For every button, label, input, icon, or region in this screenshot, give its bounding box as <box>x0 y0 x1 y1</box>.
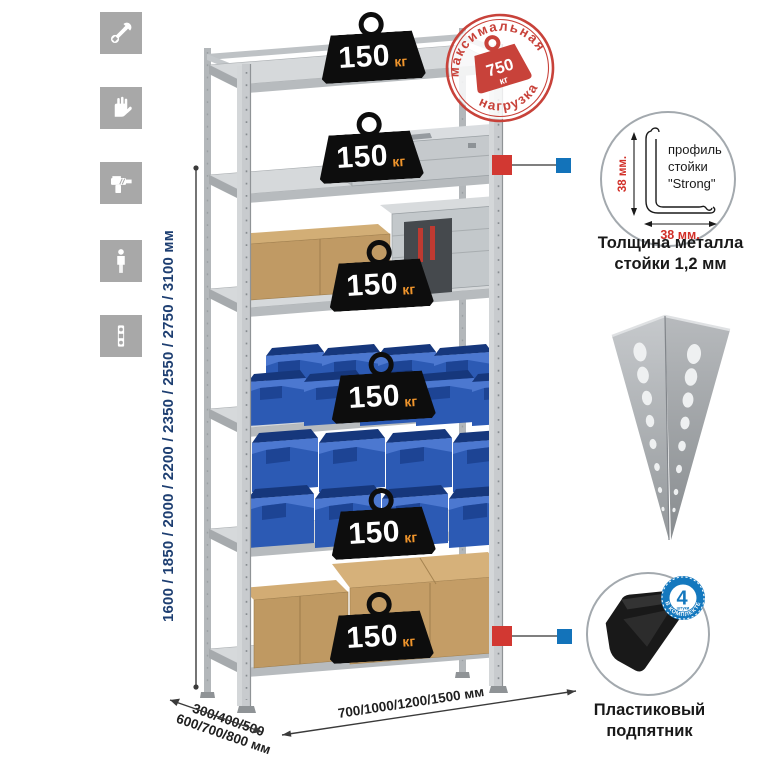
shelf-load-badge: 150кг <box>316 109 424 184</box>
profile-horizontal-dim-arrow <box>644 221 717 227</box>
profile-caption: Толщина металла стойки 1,2 мм <box>588 233 753 274</box>
angle-post-image <box>612 316 730 540</box>
foot-callout-connector <box>492 626 572 646</box>
product-infographic: { "accent_colors": { "stamp_red": "#c842… <box>0 0 765 765</box>
included-count-badge: 4 штуки в комплекте <box>660 575 706 621</box>
included-count-small-text: штуки <box>677 606 690 611</box>
shelf-load-badge: 150кг <box>326 237 434 312</box>
height-dimension-line <box>193 165 198 689</box>
shelf-load-badge: 150кг <box>328 349 436 424</box>
shelf-load-badge: 150кг <box>318 9 426 84</box>
profile-vertical-dim-label: 38 мм. <box>617 156 629 192</box>
svg-text:"Strong": "Strong" <box>668 176 716 191</box>
svg-text:профиль: профиль <box>668 142 722 157</box>
svg-text:стойки: стойки <box>668 159 708 174</box>
profile-label: профиль стойки "Strong" <box>668 142 722 191</box>
profile-detail-circle: 38 мм. 38 мм. профиль стойки "Strong" <box>600 111 736 247</box>
foot-caption: Пластиковый подпятник <box>582 700 717 741</box>
profile-vertical-dim-arrow <box>631 132 637 216</box>
shelf-load-badge: 150кг <box>328 485 436 560</box>
shelf-load-badge: 150кг <box>326 589 434 664</box>
profile-callout-connector <box>492 155 571 175</box>
width-dimension-line <box>282 689 576 737</box>
